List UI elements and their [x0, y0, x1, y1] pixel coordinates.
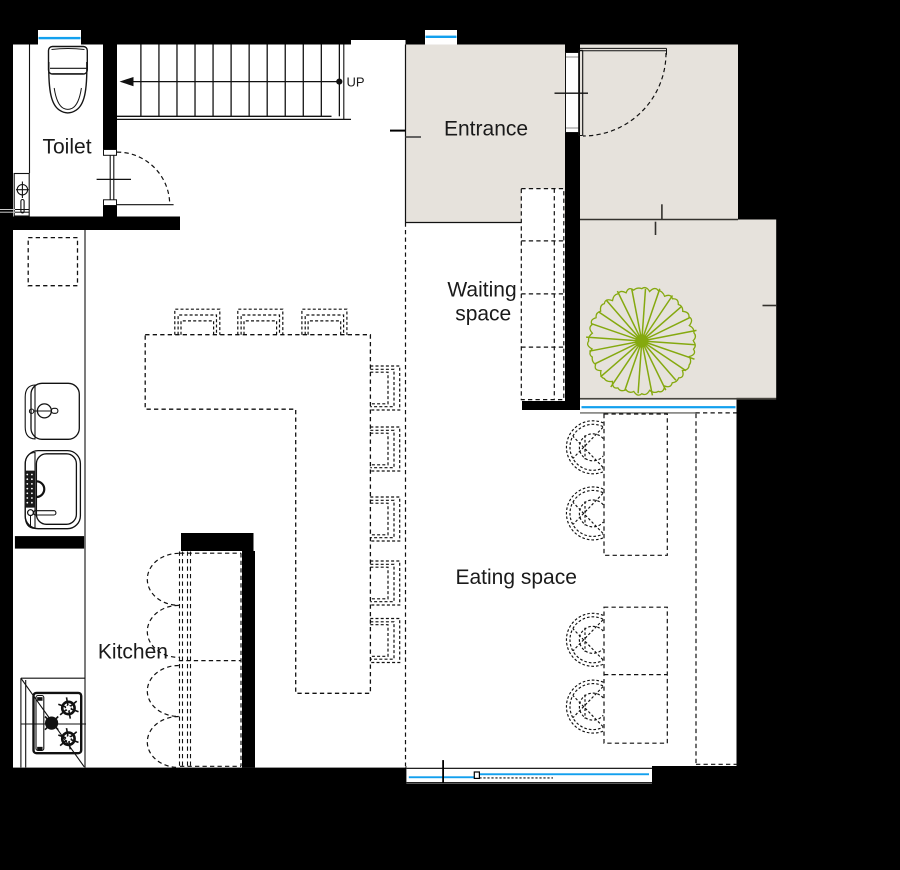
svg-text:UP: UP: [347, 75, 365, 90]
svg-text:Entrance: Entrance: [444, 118, 528, 141]
svg-text:space: space: [455, 303, 511, 326]
svg-text:Waiting: Waiting: [447, 279, 516, 302]
svg-text:Toilet: Toilet: [43, 136, 92, 159]
svg-text:Eating space: Eating space: [456, 566, 577, 589]
svg-text:Kitchen: Kitchen: [98, 640, 168, 663]
